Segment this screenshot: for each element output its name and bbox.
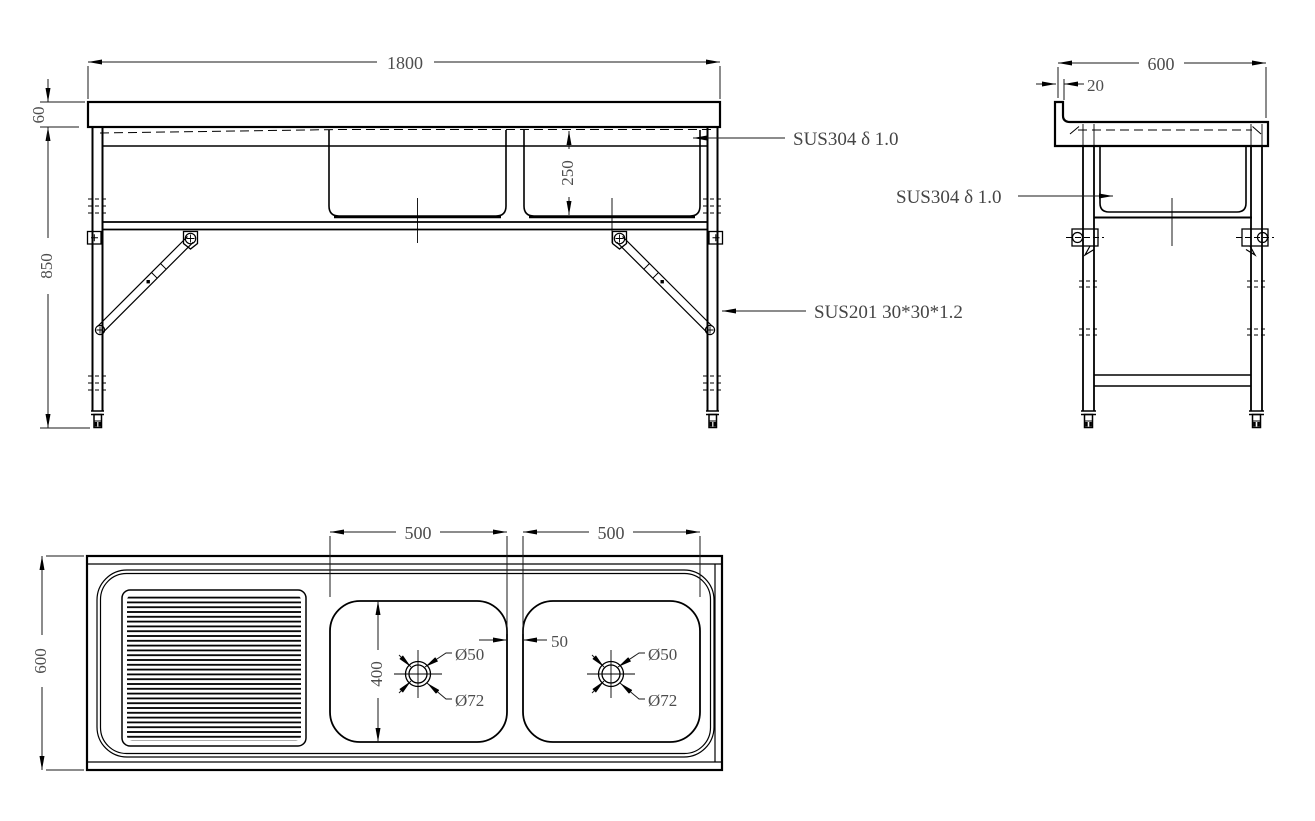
dim-overall-width: 1800 [88, 52, 720, 99]
dim-backsplash: 20 [1036, 76, 1104, 100]
front-hidden-surface-line [100, 130, 712, 134]
dim-backsplash-text: 20 [1087, 76, 1104, 95]
front-leg-right [708, 127, 718, 411]
dim-overall-width-text: 1800 [387, 53, 423, 73]
front-tabletop [88, 102, 720, 127]
plan-bowl-1 [330, 601, 507, 742]
label-drain-hole-1: Ø50 [455, 645, 484, 664]
side-bracket-back [1236, 229, 1274, 255]
front-folding-brace-left [95, 232, 197, 335]
plan-drain-2: Ø50 Ø72 [587, 645, 677, 710]
label-drain-flange-1: Ø72 [455, 691, 484, 710]
front-leg-bracket-left [88, 232, 102, 245]
front-view: 1800 60 850 250 SUS304 δ 1.0 [29, 52, 963, 428]
dim-plan-depth-text: 600 [31, 648, 50, 674]
side-leg-back [1251, 146, 1262, 411]
callout-top-material: SUS304 δ 1.0 [693, 129, 899, 150]
side-bowl [1100, 146, 1246, 212]
front-foot-right [706, 411, 719, 428]
dim-bowl-depth: 250 [558, 131, 578, 215]
dim-overall-height-text: 850 [37, 253, 56, 279]
dim-bowl-length: 400 [367, 601, 387, 742]
plan-view: Ø50 Ø72 Ø50 Ø72 500 500 [31, 523, 722, 770]
dim-bowl2-width: 500 [523, 523, 700, 634]
plan-drainboard-ribs [127, 595, 301, 741]
sink-table-drawing: 1800 60 850 250 SUS304 δ 1.0 [0, 0, 1315, 821]
dim-bowl2-width-text: 500 [598, 523, 625, 543]
label-drain-hole-2: Ø50 [648, 645, 677, 664]
dim-top-thickness: 60 [29, 79, 85, 150]
front-leg-left [93, 127, 103, 411]
side-tabletop [1055, 102, 1268, 146]
dim-bowl1-width: 500 [330, 523, 507, 634]
dim-side-depth-text: 600 [1148, 54, 1175, 74]
label-bowl-material: SUS304 δ 1.0 [896, 187, 1002, 208]
label-frame-material: SUS201 30*30*1.2 [814, 302, 963, 323]
dim-bowl-depth-text: 250 [558, 160, 577, 186]
callout-frame-material: SUS201 30*30*1.2 [722, 302, 963, 323]
side-crossbar [1094, 375, 1251, 386]
dim-overall-height: 850 [37, 127, 90, 428]
side-leg-front [1083, 146, 1094, 411]
label-drain-flange-2: Ø72 [648, 691, 677, 710]
label-top-material: SUS304 δ 1.0 [793, 129, 899, 150]
front-folding-brace-right [613, 232, 715, 335]
dim-bowl-gap-text: 50 [551, 632, 568, 651]
front-leg-bracket-right [709, 232, 723, 245]
plan-bowl-2 [523, 601, 700, 742]
side-bracket-front [1066, 229, 1104, 255]
dim-bowl1-width-text: 500 [405, 523, 432, 543]
side-foot-front [1081, 411, 1096, 428]
technical-drawing-page: 1800 60 850 250 SUS304 δ 1.0 [0, 0, 1315, 821]
side-view: 600 20 SUS304 δ 1.0 [896, 53, 1274, 428]
plan-drain-1: Ø50 Ø72 [394, 645, 484, 710]
dim-top-thickness-text: 60 [29, 107, 48, 124]
side-foot-back [1249, 411, 1264, 428]
dim-plan-depth: 600 [31, 556, 84, 770]
dim-bowl-length-text: 400 [367, 661, 386, 687]
front-foot-left [91, 411, 104, 428]
callout-bowl-material: SUS304 δ 1.0 [896, 187, 1113, 208]
